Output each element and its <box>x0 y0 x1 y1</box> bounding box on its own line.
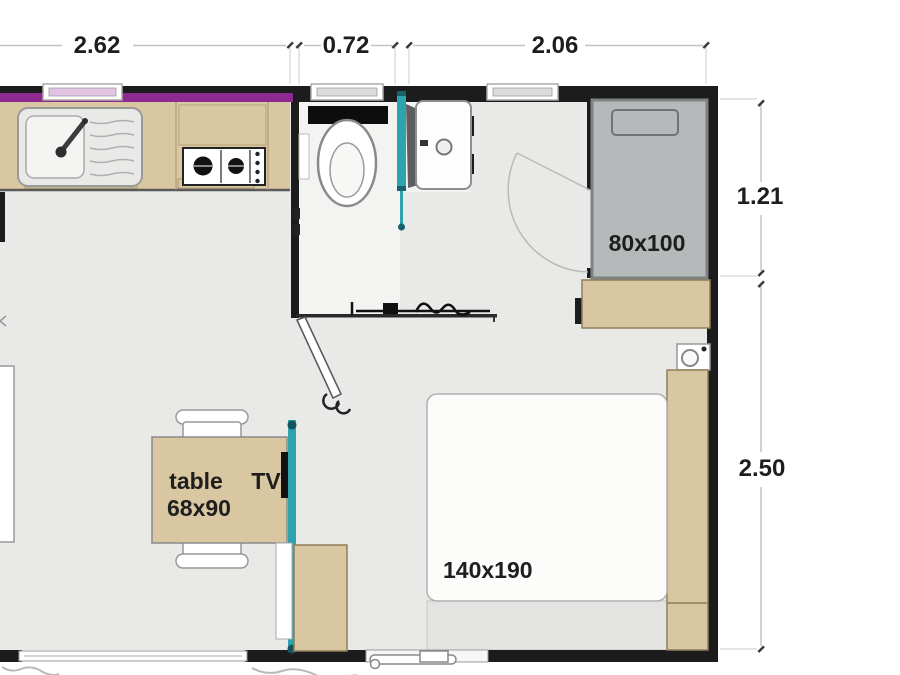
table-label: table <box>169 468 223 494</box>
door-hinge-mark-1 <box>292 208 300 219</box>
corner-vanity <box>677 344 710 370</box>
table-size-label: 68x90 <box>167 495 231 521</box>
bottom-wall-middle <box>245 650 368 662</box>
wardrobe <box>667 370 708 650</box>
dim-label-250: 2.50 <box>739 455 786 482</box>
tv-label: TV <box>251 468 281 494</box>
main-bedroom: 140x190 <box>427 394 667 601</box>
buffet-cabinet <box>294 545 347 651</box>
window-bottom <box>19 651 247 661</box>
kitchen-sink <box>18 108 142 186</box>
chair-top <box>176 410 248 439</box>
sink-bowl <box>26 116 84 178</box>
vanity-basin-icon <box>682 350 698 366</box>
dim-label-206: 2.06 <box>532 32 579 59</box>
tv-unit <box>281 452 289 498</box>
window-bedroom <box>487 84 558 100</box>
window-bathroom <box>311 84 383 100</box>
dim-label-121: 1.21 <box>737 183 784 210</box>
dim-label-072: 0.72 <box>323 32 370 59</box>
wall-niche <box>299 134 309 179</box>
bench-left-edge <box>0 366 14 542</box>
kitchen-area <box>0 102 290 190</box>
door-hinge-mark-2 <box>292 224 300 235</box>
bottom-wall-right <box>487 650 718 662</box>
floorplan-svg: 80x100 140x190 table 68x90 TV <box>0 0 900 675</box>
left-edge-wall-mark <box>0 192 5 242</box>
washbasin-unit <box>416 101 471 189</box>
drain-icon <box>437 140 452 155</box>
bed-large-label: 140x190 <box>443 557 533 583</box>
stove <box>183 148 265 185</box>
entrance-sliding-door <box>366 650 488 669</box>
ground-marks <box>2 667 364 675</box>
right-side-furniture <box>667 344 710 650</box>
window-kitchen <box>43 84 122 100</box>
cabinet-door-panel <box>276 543 292 639</box>
door-latch <box>420 651 448 662</box>
dim-label-262: 2.62 <box>74 32 121 59</box>
bedside-cabinet <box>582 280 710 328</box>
bed-foot-mat <box>427 601 667 650</box>
floorplan-canvas: 80x100 140x190 table 68x90 TV <box>0 0 900 675</box>
bed-small-label: 80x100 <box>609 230 686 256</box>
